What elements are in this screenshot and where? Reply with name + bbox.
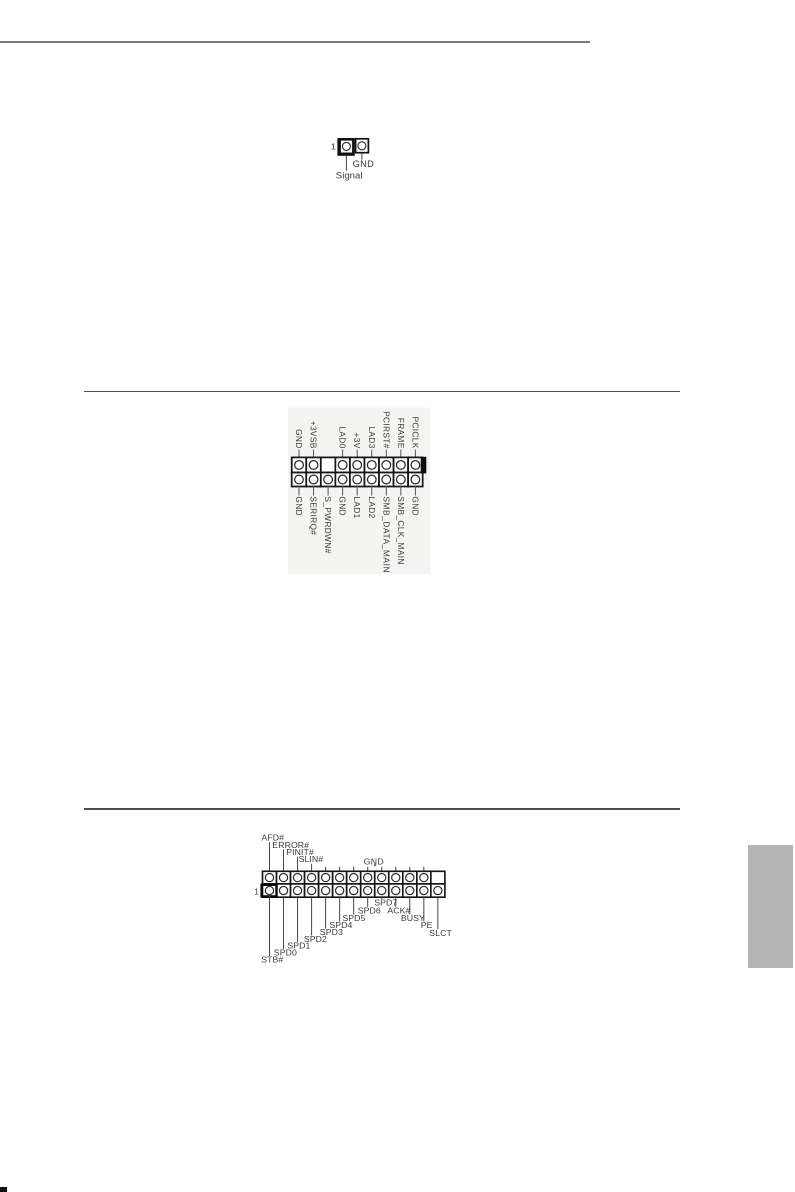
svg-text:GND: GND: [364, 856, 385, 866]
svg-text:SLIN#: SLIN#: [299, 854, 324, 864]
svg-text:GND: GND: [294, 429, 304, 449]
svg-text:SMB_CLK_MAIN: SMB_CLK_MAIN: [396, 496, 406, 564]
svg-text:SMB_DATA_MAIN: SMB_DATA_MAIN: [381, 496, 391, 573]
svg-text:GND: GND: [353, 159, 375, 169]
svg-text:SLCT: SLCT: [429, 928, 452, 938]
svg-text:GND: GND: [410, 496, 420, 516]
svg-text:PCIRST#: PCIRST#: [381, 411, 391, 449]
svg-text:+3V: +3V: [352, 433, 362, 449]
svg-text:LAD2: LAD2: [367, 496, 377, 518]
svg-text:GND: GND: [338, 496, 348, 516]
svg-text:+3VSB: +3VSB: [309, 421, 319, 449]
svg-text:S_PWRDWN#: S_PWRDWN#: [323, 496, 333, 553]
svg-text:PCICLK: PCICLK: [410, 417, 420, 449]
svg-text:LAD0: LAD0: [338, 426, 348, 448]
svg-text:SERIRQ#: SERIRQ#: [309, 496, 319, 535]
svg-text:1: 1: [331, 142, 336, 152]
svg-text:LAD3: LAD3: [367, 426, 377, 448]
svg-text:FRAME: FRAME: [396, 418, 406, 449]
svg-text:Signal: Signal: [336, 171, 363, 182]
svg-text:GND: GND: [294, 496, 304, 516]
svg-text:LAD1: LAD1: [352, 496, 362, 518]
svg-text:1: 1: [254, 886, 259, 896]
